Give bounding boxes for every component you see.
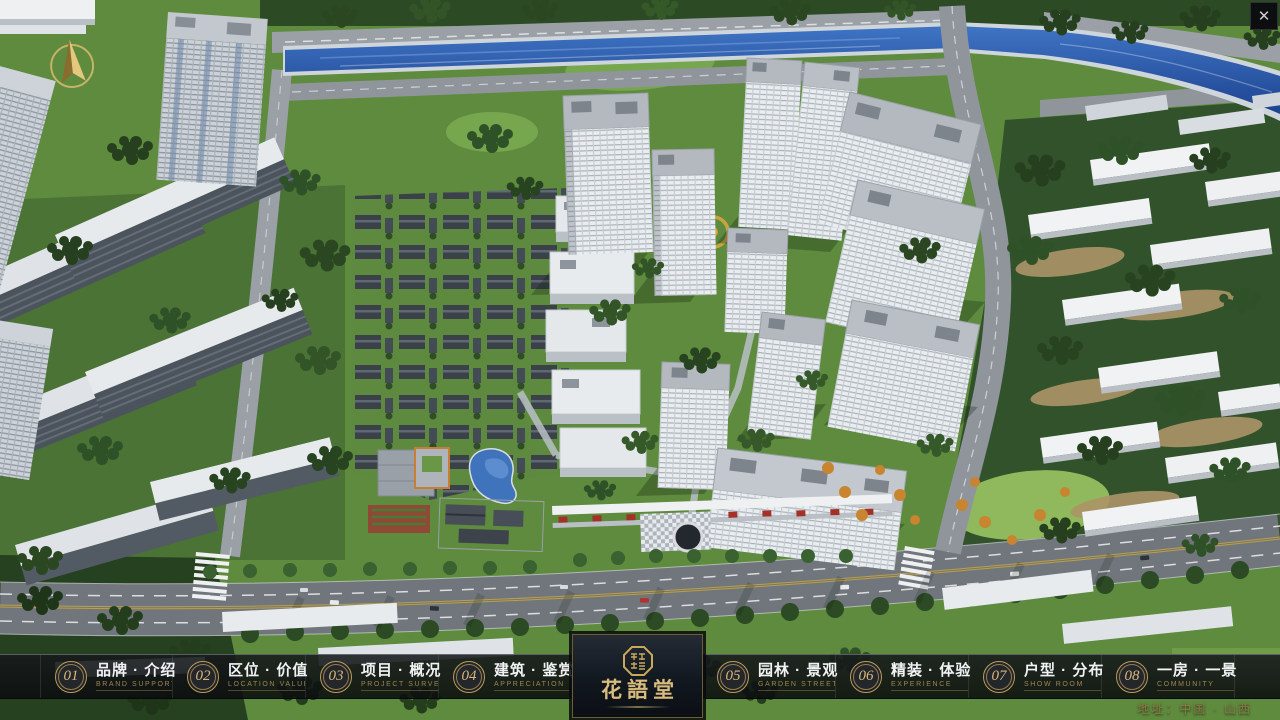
- nav-item-brand-intro[interactable]: 01 品牌 · 介绍BRAND SUPPORT: [40, 655, 173, 698]
- logo-seal-icon: [622, 645, 654, 677]
- nav-item-sublabel: COMMUNITY: [1157, 681, 1234, 691]
- logo-subline: [606, 706, 670, 708]
- nav-item-architecture-appreciation[interactable]: 04 建筑 · 鉴赏APPRECIATION: [439, 655, 572, 698]
- nav-item-label: 区位 · 价值: [228, 662, 305, 679]
- nav-item-label: 户型 · 分布: [1024, 662, 1101, 679]
- nav-item-sublabel: PROJECT SURVEY: [361, 681, 438, 691]
- nav-item-garden-landscape[interactable]: 05 园林 · 景观GARDEN STREET: [703, 655, 836, 698]
- project-logo-title: 花語堂: [596, 680, 679, 701]
- nav-group-left: 01 品牌 · 介绍BRAND SUPPORT 02 区位 · 价值LOCATI…: [40, 655, 572, 698]
- close-button[interactable]: ✕: [1250, 2, 1278, 30]
- nav-number-badge: 04: [453, 661, 485, 693]
- bottom-navbar: 01 品牌 · 介绍BRAND SUPPORT 02 区位 · 价值LOCATI…: [0, 654, 1280, 699]
- masterplan-render: [0, 0, 1280, 720]
- nav-item-number: 05: [726, 669, 741, 684]
- nav-item-floorplan-distribution[interactable]: 07 户型 · 分布SHOW ROOM: [969, 655, 1102, 698]
- nav-number-badge: 08: [1116, 661, 1148, 693]
- nav-item-location-value[interactable]: 02 区位 · 价值LOCATION VALUE: [173, 655, 306, 698]
- nav-item-number: 03: [329, 669, 344, 684]
- nav-item-number: 04: [462, 669, 477, 684]
- nav-number-badge: 02: [187, 661, 219, 693]
- nav-item-sublabel: APPRECIATION: [494, 681, 571, 691]
- nav-item-label: 品牌 · 介绍: [96, 662, 172, 679]
- nav-item-sublabel: GARDEN STREET: [758, 681, 835, 691]
- nav-item-label: 精装 · 体验: [891, 662, 968, 679]
- sales-presentation-window: ✕ 01 品牌 · 介绍BRAND SUPPORT 02 区位 · 价值LOCA…: [0, 0, 1280, 720]
- nav-item-number: 06: [859, 669, 874, 684]
- nav-item-label: 一房 · 一景: [1157, 662, 1234, 679]
- nav-number-badge: 03: [320, 661, 352, 693]
- nav-item-sublabel: EXPERIENCE: [891, 681, 968, 691]
- nav-item-sublabel: LOCATION VALUE: [228, 681, 305, 691]
- entrance-gate-emblem: [674, 523, 702, 551]
- nav-number-badge: 05: [717, 661, 749, 693]
- nav-item-project-overview[interactable]: 03 项目 · 概况PROJECT SURVEY: [306, 655, 439, 698]
- nav-item-label: 项目 · 概况: [361, 662, 438, 679]
- nav-item-number: 02: [196, 669, 211, 684]
- nav-item-number: 07: [992, 669, 1007, 684]
- nav-group-right: 05 园林 · 景观GARDEN STREET 06 精装 · 体验EXPERI…: [703, 655, 1235, 698]
- nav-item-interior-experience[interactable]: 06 精装 · 体验EXPERIENCE: [836, 655, 969, 698]
- nav-number-badge: 01: [55, 661, 87, 693]
- nav-item-label: 建筑 · 鉴赏: [494, 662, 571, 679]
- nav-number-badge: 07: [983, 661, 1015, 693]
- nav-number-badge: 06: [850, 661, 882, 693]
- nav-item-number: 08: [1125, 669, 1140, 684]
- nav-item-number: 01: [64, 669, 79, 684]
- nav-item-sublabel: SHOW ROOM: [1024, 681, 1101, 691]
- nav-item-label: 园林 · 景观: [758, 662, 835, 679]
- nav-item-sublabel: BRAND SUPPORT: [96, 681, 172, 691]
- project-logo-panel[interactable]: 花語堂: [572, 634, 703, 718]
- nav-item-room-view[interactable]: 08 一房 · 一景COMMUNITY: [1102, 655, 1235, 698]
- compass-icon: [42, 34, 102, 96]
- project-address: 地址：中国 · 山西: [1137, 700, 1252, 717]
